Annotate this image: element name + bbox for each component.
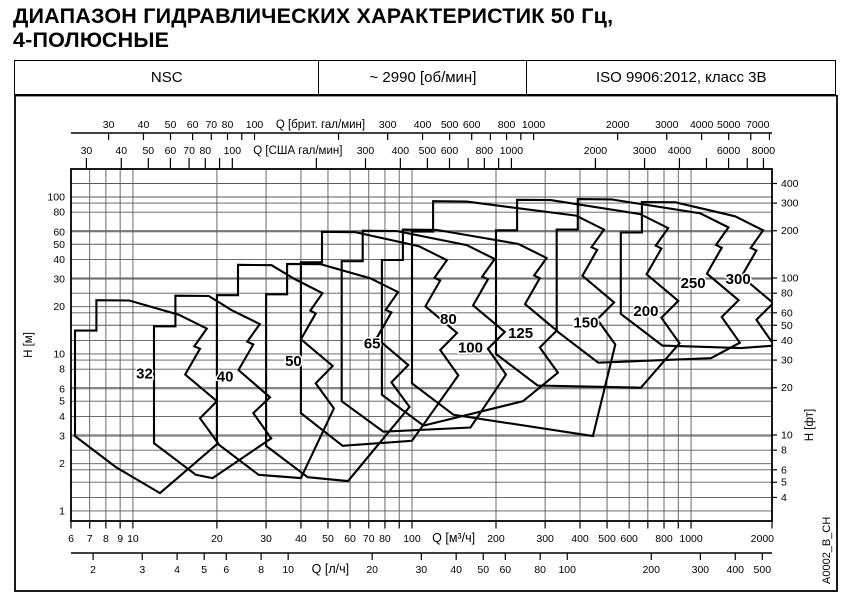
tick-label-m3h: 40 <box>295 533 307 545</box>
axis-h-m: 123456810203040506080100 <box>47 192 65 518</box>
envelope-label-65: 65 <box>364 336 381 353</box>
tick-label-m3h: 400 <box>571 533 589 545</box>
tick-label-imp_gpm: 7000 <box>746 119 770 131</box>
pump-envelopes <box>75 199 774 493</box>
tick-label-h-m: 100 <box>47 192 65 204</box>
axis-title-imp_gpm: Q [брит. гал/мин] <box>276 119 365 131</box>
tick-label-h-ft: 400 <box>781 178 799 190</box>
axis-title-m3h: Q [м³/ч] <box>432 531 475 545</box>
tick-label-imp_gpm: 5000 <box>717 119 741 131</box>
tick-label-imp_gpm: 60 <box>187 119 199 131</box>
tick-label-h-m: 20 <box>53 301 65 313</box>
tick-label-imp_gpm: 500 <box>441 119 459 131</box>
tick-label-us_gpm: 1000 <box>500 145 524 157</box>
tick-label-us_gpm: 100 <box>224 145 242 157</box>
tick-label-h-ft: 50 <box>781 320 793 332</box>
tick-label-h-ft: 30 <box>781 355 793 367</box>
envelope-65 <box>266 264 409 481</box>
page-title: ДИАПАЗОН ГИДРАВЛИЧЕСКИХ ХАРАКТЕРИСТИК 50… <box>13 4 613 52</box>
tick-label-h-ft: 5 <box>781 477 787 489</box>
axis-ls: 23456810203040506080100200300400500Q [л/… <box>71 553 772 576</box>
tick-label-imp_gpm: 3000 <box>655 119 679 131</box>
envelope-label-100: 100 <box>458 340 483 357</box>
tick-label-imp_gpm: 2000 <box>606 119 630 131</box>
axis-title-ls: Q [л/ч] <box>312 562 349 576</box>
tick-label-imp_gpm: 400 <box>414 119 432 131</box>
tick-label-us_gpm: 60 <box>165 145 177 157</box>
tick-label-m3h: 70 <box>363 533 375 545</box>
tick-label-imp_gpm: 70 <box>205 119 217 131</box>
tick-label-ls: 20 <box>366 564 378 576</box>
tick-label-us_gpm: 70 <box>183 145 195 157</box>
tick-label-us_gpm: 6000 <box>717 145 741 157</box>
tick-label-h-m: 3 <box>59 431 65 443</box>
tick-label-us_gpm: 600 <box>441 145 459 157</box>
envelope-label-250: 250 <box>681 275 706 292</box>
tick-label-h-m: 1 <box>59 505 65 517</box>
envelope-label-80: 80 <box>440 311 457 328</box>
tick-label-m3h: 1000 <box>679 533 703 545</box>
tick-label-imp_gpm: 50 <box>165 119 177 131</box>
tick-label-us_gpm: 40 <box>115 145 127 157</box>
tick-label-us_gpm: 80 <box>199 145 211 157</box>
envelope-label-125: 125 <box>508 325 533 342</box>
tick-label-h-m: 50 <box>53 239 65 251</box>
tick-label-h-ft: 20 <box>781 382 793 394</box>
envelope-32 <box>75 300 218 493</box>
page-title-line1: ДИАПАЗОН ГИДРАВЛИЧЕСКИХ ХАРАКТЕРИСТИК 50… <box>13 4 613 28</box>
tick-label-imp_gpm: 1000 <box>522 119 546 131</box>
header-table: NSC ~ 2990 [об/мин] ISO 9906:2012, класс… <box>14 60 836 95</box>
tick-label-h-ft: 80 <box>781 288 793 300</box>
tick-label-h-m: 8 <box>59 364 65 376</box>
tick-label-imp_gpm: 30 <box>103 119 115 131</box>
tick-label-ls: 5 <box>201 564 207 576</box>
tick-label-ls: 100 <box>558 564 576 576</box>
tick-label-imp_gpm: 100 <box>246 119 264 131</box>
tick-label-imp_gpm: 600 <box>463 119 481 131</box>
tick-label-us_gpm: 2000 <box>584 145 608 157</box>
tick-label-m3h: 500 <box>598 533 616 545</box>
envelope-label-32: 32 <box>136 365 153 382</box>
envelope-label-150: 150 <box>573 315 598 332</box>
tick-label-h-ft: 6 <box>781 464 787 476</box>
tick-label-h-ft: 200 <box>781 225 799 237</box>
tick-label-ls: 500 <box>754 564 772 576</box>
tick-label-ls: 80 <box>534 564 546 576</box>
envelope-label-50: 50 <box>285 353 302 370</box>
tick-label-m3h: 2000 <box>751 533 775 545</box>
tick-label-imp_gpm: 300 <box>379 119 397 131</box>
tick-label-h-ft: 4 <box>781 492 787 504</box>
range-chart-figure: 3240506580100125150200250300304050607080… <box>14 95 838 592</box>
envelope-50 <box>217 265 334 478</box>
envelope-40 <box>154 296 271 478</box>
header-standard: ISO 9906:2012, класс 3В <box>527 61 835 94</box>
tick-label-ls: 60 <box>499 564 511 576</box>
tick-label-h-m: 5 <box>59 396 65 408</box>
tick-label-m3h: 20 <box>211 533 223 545</box>
envelope-label-40: 40 <box>217 368 234 385</box>
tick-label-ls: 50 <box>477 564 489 576</box>
tick-label-ls: 4 <box>174 564 180 576</box>
tick-label-us_gpm: 30 <box>81 145 93 157</box>
tick-label-h-m: 2 <box>59 458 65 470</box>
axis-h-ft: 456810203040506080100200300400 <box>772 178 799 504</box>
tick-label-m3h: 200 <box>487 533 505 545</box>
tick-label-imp_gpm: 40 <box>138 119 150 131</box>
envelope-label-200: 200 <box>633 303 658 320</box>
tick-label-ls: 2 <box>90 564 96 576</box>
tick-label-ls: 10 <box>282 564 294 576</box>
tick-label-h-m: 4 <box>59 411 65 423</box>
axis-imp_gpm: 3040506070801003004005006008001000200030… <box>71 119 772 140</box>
tick-label-m3h: 8 <box>103 533 109 545</box>
tick-label-h-ft: 60 <box>781 307 793 319</box>
tick-label-imp_gpm: 4000 <box>690 119 714 131</box>
tick-label-h-m: 40 <box>53 254 65 266</box>
tick-label-us_gpm: 500 <box>419 145 437 157</box>
tick-label-h-ft: 8 <box>781 445 787 457</box>
tick-label-ls: 6 <box>223 564 229 576</box>
axis-us_gpm: 3040506070801003004005006008001000200030… <box>81 145 776 168</box>
tick-label-m3h: 7 <box>87 533 93 545</box>
tick-label-imp_gpm: 800 <box>498 119 516 131</box>
tick-label-us_gpm: 800 <box>476 145 494 157</box>
tick-label-ls: 200 <box>642 564 660 576</box>
tick-label-h-m: 80 <box>53 207 65 219</box>
axis-title-us_gpm: Q [США гал/мин] <box>253 145 342 157</box>
side-code: A0002_B_CH <box>821 517 833 584</box>
tick-label-m3h: 600 <box>620 533 638 545</box>
tick-label-m3h: 300 <box>536 533 554 545</box>
tick-label-ls: 30 <box>415 564 427 576</box>
tick-label-us_gpm: 8000 <box>752 145 776 157</box>
tick-label-us_gpm: 300 <box>357 145 375 157</box>
range-chart-svg: 3240506580100125150200250300304050607080… <box>14 95 838 592</box>
tick-label-imp_gpm: 80 <box>222 119 234 131</box>
tick-label-m3h: 50 <box>322 533 334 545</box>
tick-label-m3h: 9 <box>117 533 123 545</box>
tick-label-h-ft: 100 <box>781 273 799 285</box>
tick-label-h-m: 6 <box>59 383 65 395</box>
tick-label-ls: 3 <box>139 564 145 576</box>
tick-label-h-m: 60 <box>53 226 65 238</box>
tick-label-us_gpm: 400 <box>392 145 410 157</box>
envelope-label-300: 300 <box>726 271 751 288</box>
tick-label-m3h: 6 <box>68 533 74 545</box>
tick-label-m3h: 100 <box>403 533 421 545</box>
tick-label-m3h: 80 <box>379 533 391 545</box>
document-page: ДИАПАЗОН ГИДРАВЛИЧЕСКИХ ХАРАКТЕРИСТИК 50… <box>0 0 848 602</box>
tick-label-h-m: 10 <box>53 348 65 360</box>
axis-title-h-ft: H [фт] <box>804 409 816 441</box>
tick-label-us_gpm: 4000 <box>668 145 692 157</box>
tick-label-ls: 400 <box>726 564 744 576</box>
header-model: NSC <box>15 61 318 94</box>
axis-m3h: 6789102030405060708010020030040050060080… <box>68 521 774 545</box>
tick-label-h-ft: 300 <box>781 198 799 210</box>
tick-label-ls: 300 <box>692 564 710 576</box>
tick-label-m3h: 800 <box>655 533 673 545</box>
tick-label-h-m: 30 <box>53 274 65 286</box>
tick-label-h-ft: 40 <box>781 335 793 347</box>
tick-label-m3h: 10 <box>127 533 139 545</box>
tick-label-us_gpm: 3000 <box>633 145 657 157</box>
page-title-line2: 4-ПОЛЮСНЫЕ <box>13 28 613 52</box>
header-speed: ~ 2990 [об/мин] <box>318 61 527 94</box>
axis-title-h-m: H [м] <box>23 332 35 358</box>
tick-label-h-ft: 10 <box>781 429 793 441</box>
tick-label-ls: 8 <box>258 564 264 576</box>
tick-label-m3h: 30 <box>260 533 272 545</box>
tick-label-us_gpm: 50 <box>142 145 154 157</box>
tick-label-m3h: 60 <box>344 533 356 545</box>
tick-label-ls: 40 <box>450 564 462 576</box>
